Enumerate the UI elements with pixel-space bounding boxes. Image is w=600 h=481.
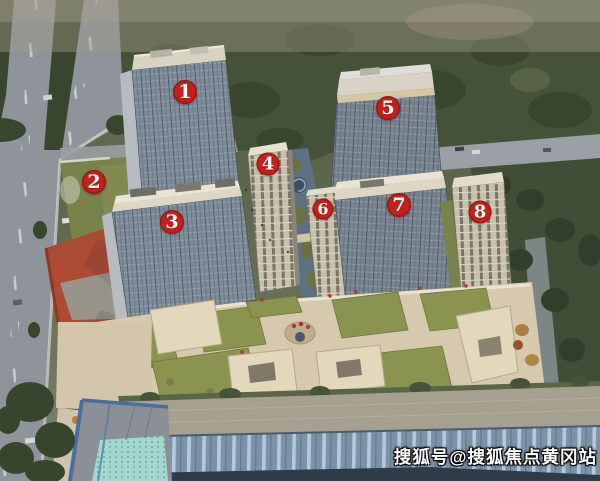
marker-layer: 12345678	[0, 0, 600, 481]
building-marker-4: 4	[257, 153, 280, 176]
building-marker-1: 1	[173, 80, 197, 104]
aerial-rendering: 12345678 搜狐号@搜狐焦点黄冈站	[0, 0, 600, 481]
building-marker-8: 8	[469, 201, 492, 224]
watermark: 搜狐号@搜狐焦点黄冈站	[394, 444, 597, 469]
building-marker-2: 2	[82, 170, 106, 194]
building-marker-5: 5	[376, 96, 400, 120]
building-marker-3: 3	[160, 210, 184, 234]
building-marker-6: 6	[313, 199, 334, 220]
building-marker-7: 7	[387, 193, 411, 217]
